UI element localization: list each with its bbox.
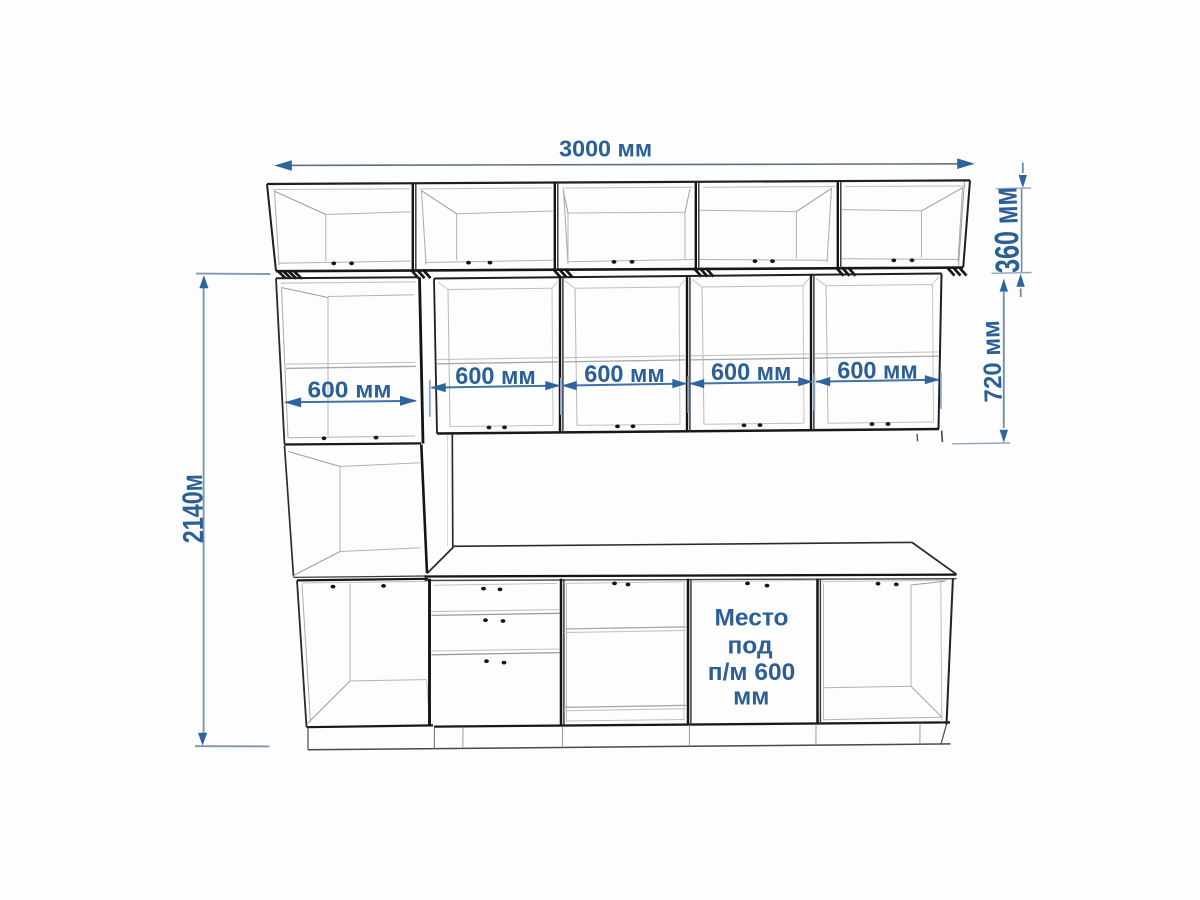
svg-text:600 мм: 600 мм: [711, 359, 792, 386]
svg-text:п/м 600: п/м 600: [708, 659, 795, 686]
svg-text:Место: Место: [715, 604, 789, 631]
svg-text:720 мм: 720 мм: [977, 320, 1008, 403]
svg-text:мм: мм: [733, 684, 769, 711]
svg-text:600 мм: 600 мм: [308, 376, 392, 402]
svg-text:600 мм: 600 мм: [584, 361, 665, 388]
svg-text:600 мм: 600 мм: [455, 363, 536, 390]
svg-text:2140м: 2140м: [177, 474, 210, 544]
svg-text:360 мм: 360 мм: [986, 186, 1027, 273]
svg-text:3000 мм: 3000 мм: [559, 135, 652, 161]
svg-text:под: под: [728, 632, 773, 659]
svg-text:600 мм: 600 мм: [837, 357, 918, 384]
